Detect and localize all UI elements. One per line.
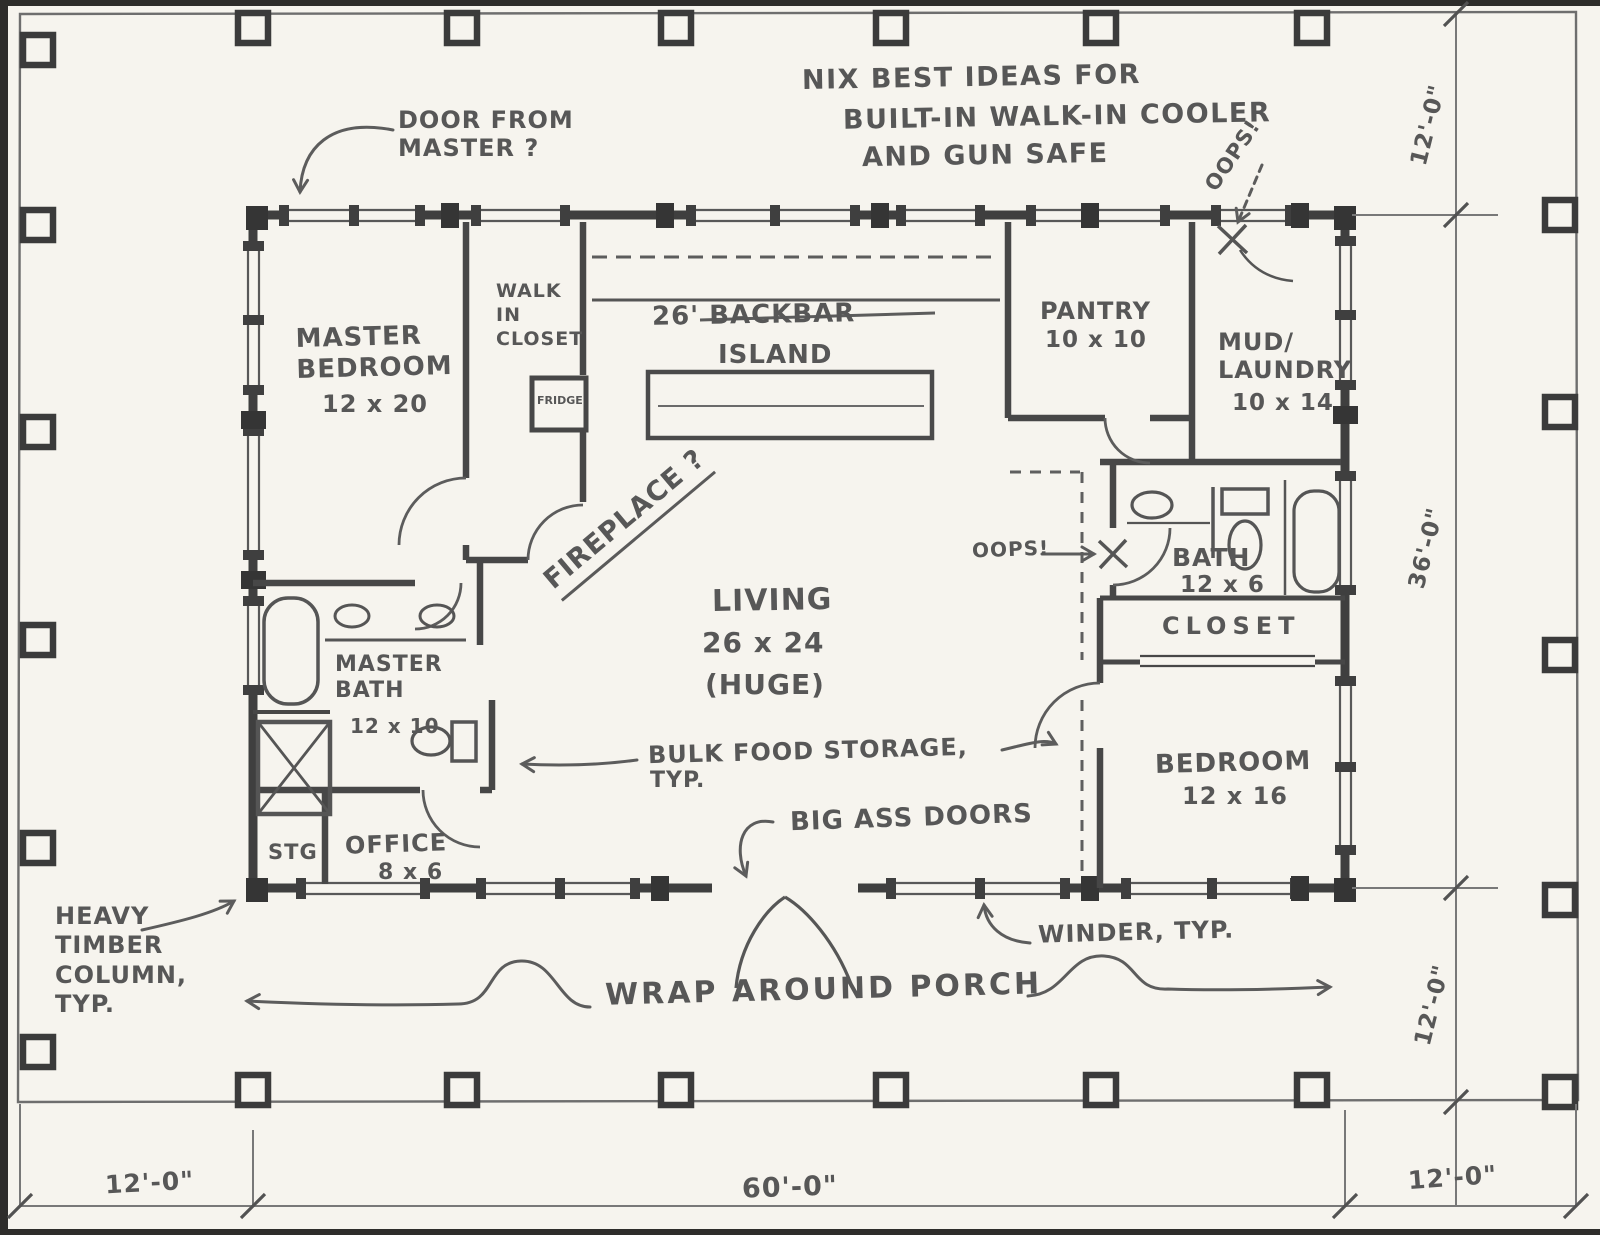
- room-bath-size: 12 x 6: [1180, 572, 1265, 599]
- room-pantry-size: 10 x 10: [1045, 327, 1147, 354]
- island-label: ISLAND: [718, 340, 832, 371]
- room-master-bath-name: MASTER BATH: [335, 652, 443, 704]
- room-office-name: OFFICE: [345, 828, 448, 860]
- master-bath-fixtures: [258, 598, 476, 814]
- room-living-note: (HUGE): [705, 668, 825, 701]
- room-master-bedroom-name: MASTER BEDROOM: [295, 320, 453, 385]
- room-living-size: 26 x 24: [702, 626, 825, 659]
- backbar-label: 26' BACKBAR: [652, 298, 856, 332]
- dim-bottom-right: 12'-0": [1407, 1160, 1498, 1196]
- note-door-from-master: DOOR FROM MASTER ?: [398, 106, 574, 163]
- annotation-arrows: [142, 127, 1330, 1007]
- room-closet-name: CLOSET: [1162, 612, 1301, 640]
- room-stg-name: STG: [268, 840, 318, 865]
- room-living-name: LIVING: [712, 582, 833, 619]
- room-office-size: 8 x 6: [378, 860, 443, 886]
- note-bulk-food-line2: TYP.: [650, 768, 705, 794]
- fridge-label: FRIDGE: [537, 395, 583, 408]
- dim-bottom-center: 60'-0": [741, 1170, 838, 1205]
- room-pantry-name: PANTRY: [1040, 297, 1151, 325]
- room-master-bedroom-size: 12 x 20: [322, 390, 428, 418]
- note-winder: WINDER, TYP.: [1038, 915, 1235, 948]
- note-nix-line3: AND GUN SAFE: [862, 138, 1109, 174]
- note-heavy-timber: HEAVY TIMBER COLUMN, TYP.: [55, 902, 187, 1019]
- floor-plan-sheet: NIX BEST IDEAS FOR BUILT-IN WALK-IN COOL…: [0, 0, 1600, 1235]
- dim-bottom-left: 12'-0": [104, 1166, 195, 1200]
- note-oops-bath: OOPS!: [972, 537, 1050, 563]
- room-bedroom-size: 12 x 16: [1182, 782, 1288, 810]
- room-bath-name: BATH: [1172, 543, 1250, 573]
- room-master-bath-size: 12 x 10: [350, 715, 440, 739]
- room-mud-laundry-name: MUD/ LAUNDRY: [1218, 328, 1352, 385]
- note-nix-line1: NIX BEST IDEAS FOR: [802, 59, 1141, 97]
- room-bedroom-name: BEDROOM: [1155, 746, 1312, 781]
- room-walk-in-closet-name: WALK IN CLOSET: [496, 280, 583, 351]
- room-mud-laundry-size: 10 x 14: [1232, 390, 1334, 417]
